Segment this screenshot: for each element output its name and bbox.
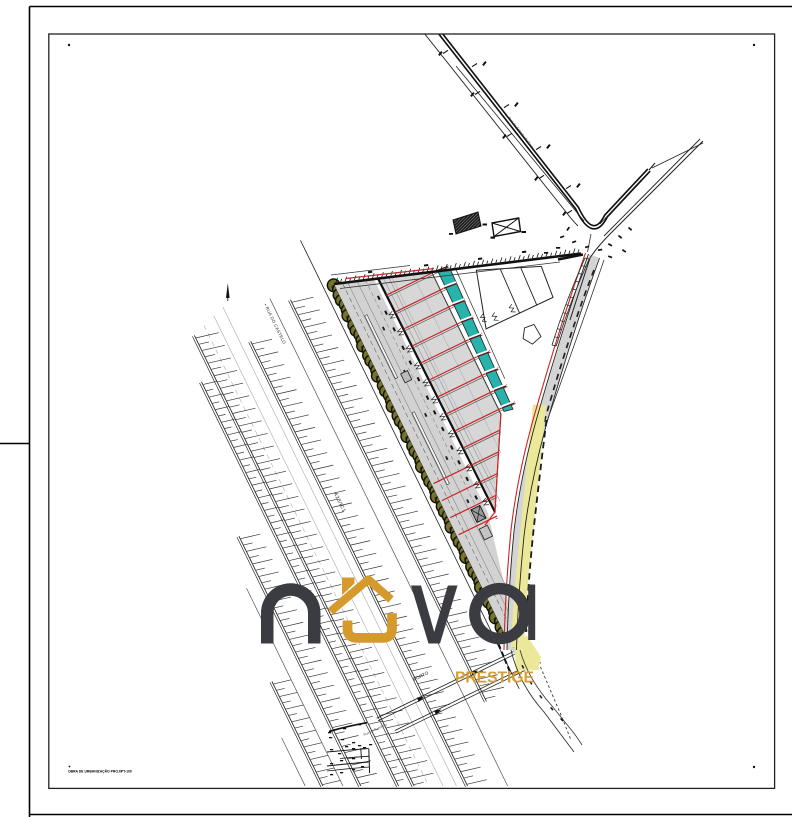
svg-text:OBRA DE URBANIZAÇÃO PROJ/PT-10: OBRA DE URBANIZAÇÃO PROJ/PT-100 [68,769,132,774]
svg-text:PRESTIGE: PRESTIGE [455,670,534,687]
